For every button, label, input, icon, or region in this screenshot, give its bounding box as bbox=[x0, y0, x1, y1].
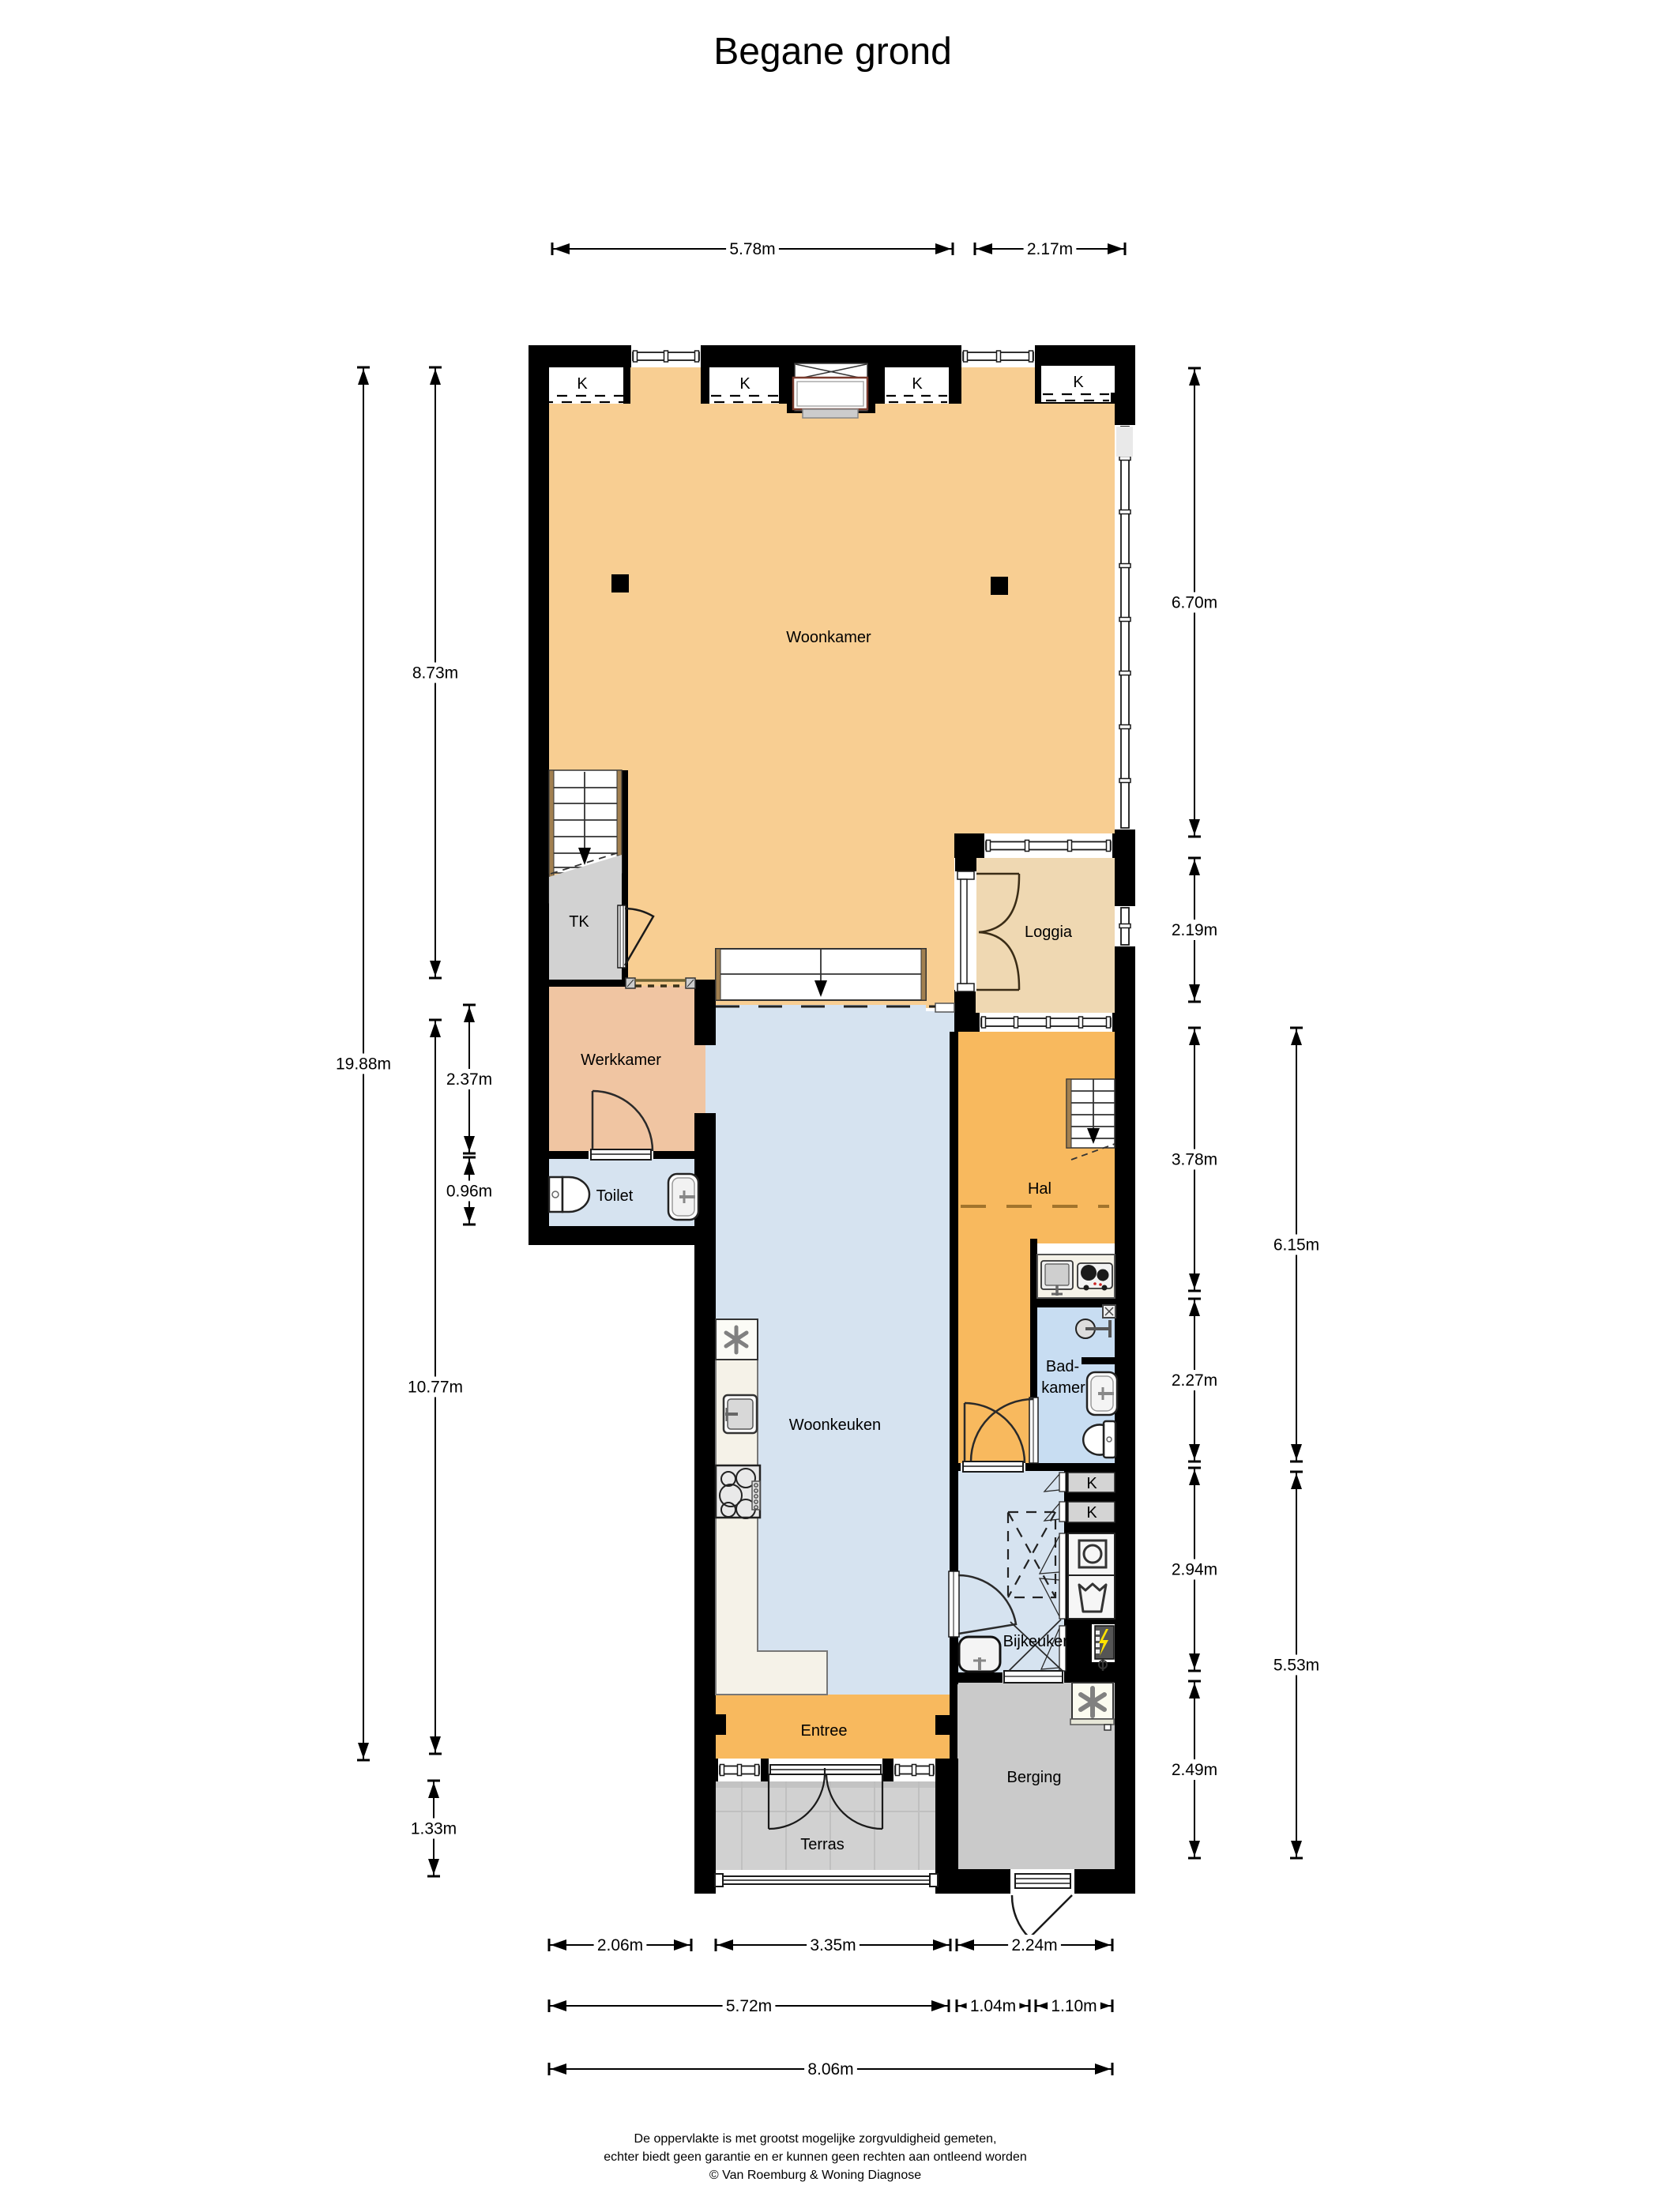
svg-text:6.15m: 6.15m bbox=[1273, 1236, 1319, 1255]
svg-text:5.53m: 5.53m bbox=[1273, 1657, 1319, 1675]
svg-text:6.70m: 6.70m bbox=[1172, 594, 1217, 612]
svg-text:Begane grond: Begane grond bbox=[713, 31, 952, 73]
svg-text:5.72m: 5.72m bbox=[726, 1997, 772, 2015]
svg-text:K: K bbox=[1073, 374, 1084, 391]
svg-text:K: K bbox=[1086, 1475, 1097, 1492]
svg-text:2.19m: 2.19m bbox=[1172, 921, 1217, 939]
svg-text:TK: TK bbox=[569, 913, 589, 931]
svg-text:kamer: kamer bbox=[1041, 1379, 1085, 1397]
svg-text:2.24m: 2.24m bbox=[1011, 1936, 1057, 1954]
svg-text:1.04m: 1.04m bbox=[970, 1997, 1016, 2015]
svg-text:8.06m: 8.06m bbox=[807, 2060, 853, 2078]
svg-text:K: K bbox=[1086, 1504, 1097, 1522]
svg-text:Entree: Entree bbox=[801, 1722, 848, 1740]
svg-text:K: K bbox=[577, 375, 588, 393]
svg-text:K: K bbox=[912, 375, 923, 393]
svg-text:8.73m: 8.73m bbox=[412, 664, 458, 683]
svg-text:5.78m: 5.78m bbox=[729, 240, 775, 258]
svg-text:2.17m: 2.17m bbox=[1027, 240, 1073, 258]
svg-text:Bijkeuken: Bijkeuken bbox=[1003, 1633, 1072, 1650]
svg-text:10.77m: 10.77m bbox=[408, 1379, 463, 1397]
svg-text:1.10m: 1.10m bbox=[1051, 1997, 1097, 2015]
svg-text:Terras: Terras bbox=[800, 1836, 845, 1853]
svg-text:Woonkeuken: Woonkeuken bbox=[789, 1416, 881, 1434]
svg-text:3.35m: 3.35m bbox=[810, 1936, 856, 1954]
svg-text:echter biedt geen garantie en: echter biedt geen garantie en er kunnen … bbox=[604, 2150, 1027, 2164]
svg-text:2.37m: 2.37m bbox=[446, 1070, 492, 1089]
svg-text:2.06m: 2.06m bbox=[597, 1936, 643, 1954]
svg-text:Berging: Berging bbox=[1007, 1769, 1062, 1786]
svg-text:2.94m: 2.94m bbox=[1172, 1561, 1217, 1579]
svg-text:19.88m: 19.88m bbox=[336, 1055, 391, 1074]
svg-text:De oppervlakte is met grootst: De oppervlakte is met grootst mogelijke … bbox=[634, 2132, 997, 2146]
svg-text:3.78m: 3.78m bbox=[1172, 1151, 1217, 1169]
svg-text:Bad-: Bad- bbox=[1046, 1358, 1079, 1375]
svg-text:1.33m: 1.33m bbox=[411, 1820, 457, 1838]
svg-text:2.49m: 2.49m bbox=[1172, 1761, 1217, 1779]
svg-text:Toilet: Toilet bbox=[596, 1187, 634, 1205]
svg-text:Werkkamer: Werkkamer bbox=[581, 1051, 661, 1069]
svg-text:© Van Roemburg & Woning Diagno: © Van Roemburg & Woning Diagnose bbox=[709, 2169, 921, 2182]
svg-text:K: K bbox=[739, 375, 750, 393]
svg-text:Loggia: Loggia bbox=[1025, 924, 1073, 941]
svg-text:2.27m: 2.27m bbox=[1172, 1371, 1217, 1390]
svg-text:0.96m: 0.96m bbox=[446, 1183, 492, 1201]
svg-text:Hal: Hal bbox=[1028, 1180, 1051, 1198]
svg-text:Woonkamer: Woonkamer bbox=[786, 629, 871, 646]
